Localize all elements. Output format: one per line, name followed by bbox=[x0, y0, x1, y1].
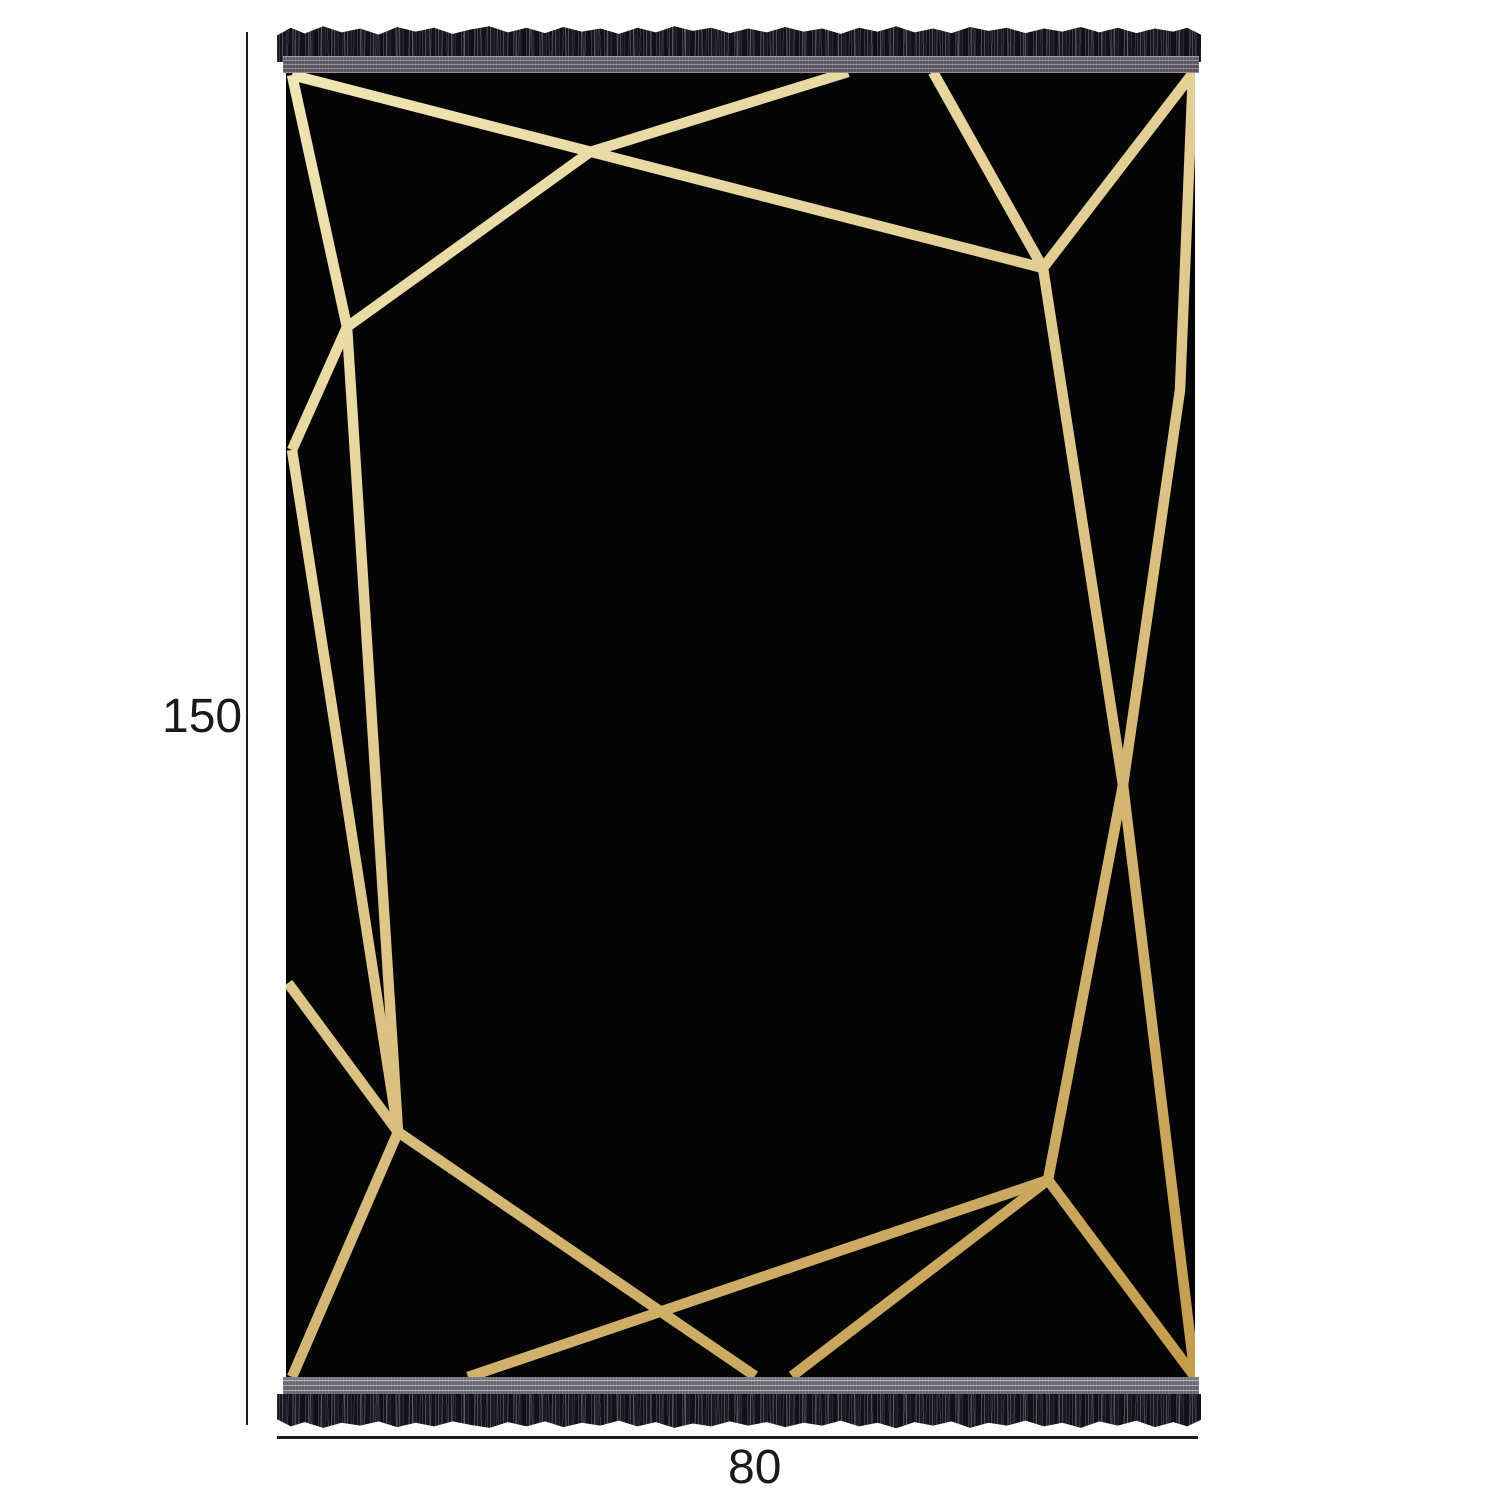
width-dimension-line bbox=[277, 1436, 1198, 1439]
height-label: 150 bbox=[162, 693, 242, 741]
selvedge-band-bottom bbox=[283, 1377, 1199, 1396]
product-dimension-image: { "canvas": { "background": "#ffffff" },… bbox=[0, 0, 1499, 1500]
height-dimension-line bbox=[246, 32, 248, 1425]
selvedge-band-top bbox=[283, 56, 1199, 73]
gold-pattern-lines bbox=[288, 72, 1195, 1377]
width-label: 80 bbox=[728, 1444, 781, 1492]
gold-pattern-svg bbox=[286, 70, 1195, 1378]
fringe-bottom bbox=[277, 1394, 1201, 1430]
